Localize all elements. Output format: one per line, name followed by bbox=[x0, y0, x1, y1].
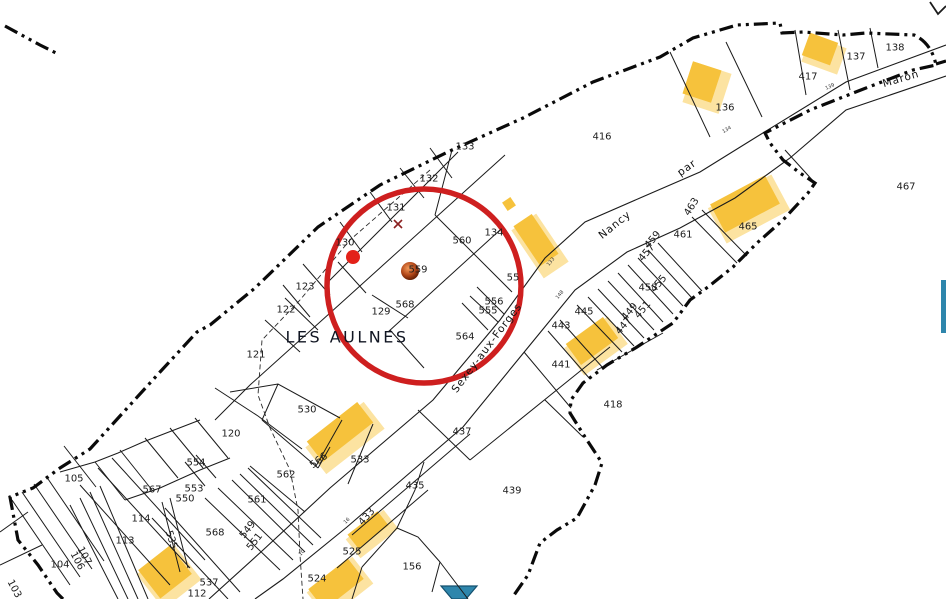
building-halos bbox=[137, 35, 847, 599]
parcel-lines bbox=[0, 2, 946, 599]
map-linework bbox=[0, 0, 946, 599]
marker-dot bbox=[346, 250, 360, 264]
cadastral-map-canvas[interactable]: LES AULNES 13313213113012312212112041613… bbox=[0, 0, 946, 599]
buildings bbox=[138, 33, 838, 599]
highlight-circle bbox=[327, 189, 521, 383]
marker-sphere bbox=[401, 262, 419, 280]
survey-cross bbox=[394, 220, 402, 228]
water-areas bbox=[441, 280, 946, 599]
commune-boundary bbox=[5, 23, 946, 599]
